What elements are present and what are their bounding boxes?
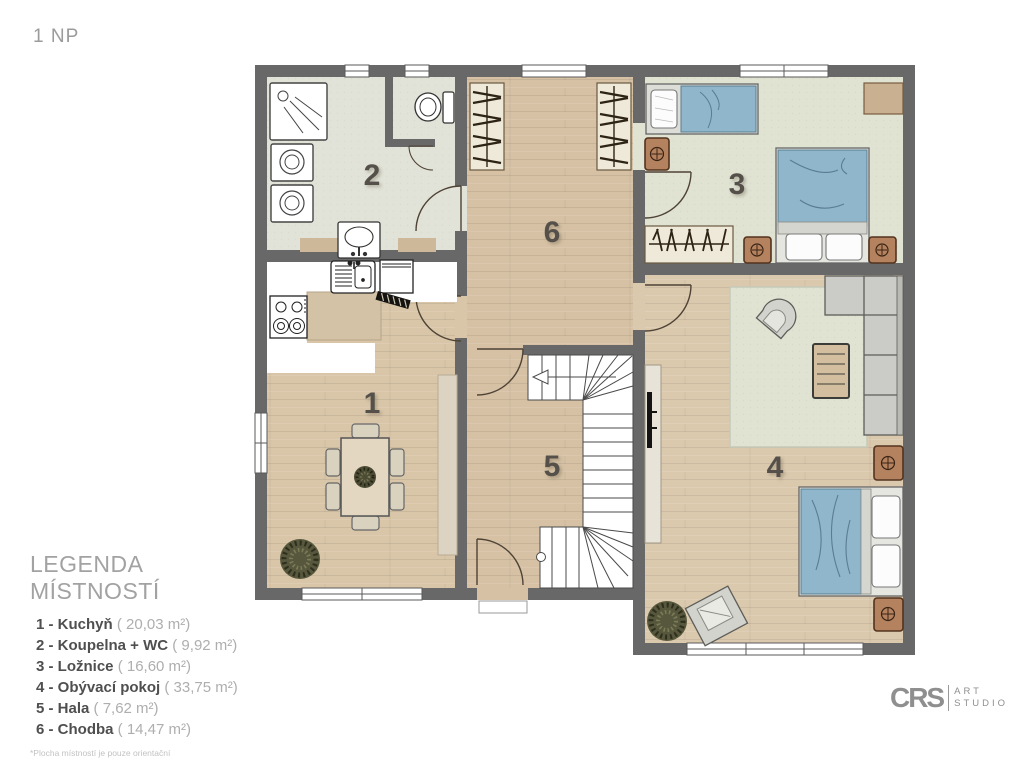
legend-list: 1 - Kuchyň ( 20,03 m²) 2 - Koupelna + WC… [30, 614, 260, 740]
logo-subtitle: ART STUDIO [954, 686, 1008, 710]
double-bed-bedroom [776, 148, 869, 263]
table-centerpiece [354, 466, 376, 488]
cooktop [270, 296, 307, 338]
chair-bottom [352, 516, 379, 530]
tv-bench [645, 365, 661, 543]
legend-item: 2 - Koupelna + WC ( 9,92 m²) [36, 635, 260, 656]
double-bed-living [799, 487, 903, 596]
coffee-table [813, 344, 849, 398]
tv-icon [647, 392, 652, 448]
counter-peninsula [307, 292, 381, 340]
chair-right-2 [390, 483, 404, 510]
nightstand-living-a [874, 446, 903, 480]
chair-right-1 [390, 449, 404, 476]
room-number-6: 6 [544, 216, 561, 250]
window-top-wc [405, 65, 429, 77]
nightstand-bedroom-a [645, 138, 669, 170]
studio-logo: CRS ART STUDIO [890, 682, 1008, 714]
window-top-bedroom [740, 65, 828, 77]
legend-footnote: *Plocha místností je pouze orientační [30, 748, 260, 758]
stairs-newel [537, 553, 546, 562]
entrance-step [479, 601, 527, 613]
nightstand-bedroom-b [744, 237, 771, 263]
room-number-1: 1 [364, 387, 381, 421]
legend-title: LEGENDA MÍSTNOSTÍ [30, 551, 260, 605]
legend: LEGENDA MÍSTNOSTÍ 1 - Kuchyň ( 20,03 m²)… [30, 551, 260, 758]
washing-machine [271, 144, 313, 181]
window-left-kitchen [255, 413, 267, 473]
single-bed [646, 84, 758, 134]
chair-left-2 [326, 483, 340, 510]
legend-item: 4 - Obývací pokoj ( 33,75 m²) [36, 677, 260, 698]
logo-brand: CRS [890, 682, 943, 714]
legend-item: 3 - Ložnice ( 16,60 m²) [36, 656, 260, 677]
window-top-hallway [522, 65, 586, 77]
room-number-3: 3 [729, 168, 746, 202]
dishwasher [380, 260, 413, 293]
floorplan-page: 1 NP [0, 0, 1024, 724]
dryer [271, 185, 313, 222]
shower [270, 83, 327, 140]
chair-left-1 [326, 449, 340, 476]
kitchen-sink [331, 261, 375, 293]
plant-living [647, 601, 687, 641]
wardrobe-right [597, 83, 631, 170]
window-bottom-kitchen [302, 588, 422, 600]
room-number-4: 4 [767, 451, 784, 485]
nightstand-bedroom-c [869, 237, 896, 263]
nightstand-living-b [874, 598, 903, 631]
room-number-2: 2 [364, 159, 381, 193]
wardrobe-bedroom [645, 226, 733, 263]
legend-item: 6 - Chodba ( 14,47 m²) [36, 719, 260, 740]
bedroom-cabinet [864, 83, 903, 114]
plant-kitchen [280, 539, 320, 579]
room-number-5: 5 [544, 450, 561, 484]
chair-top [352, 424, 379, 438]
logo-divider [948, 685, 949, 711]
wardrobe-left [470, 83, 504, 170]
window-top-bath [345, 65, 369, 77]
counter-bottom-block [267, 343, 375, 373]
legend-item: 1 - Kuchyň ( 20,03 m²) [36, 614, 260, 635]
bath-cabinet-right [398, 238, 436, 252]
legend-item: 5 - Hala ( 7,62 m²) [36, 698, 260, 719]
window-bottom-living [687, 643, 863, 655]
bath-sink [338, 222, 380, 258]
bath-cabinet-left [300, 238, 338, 252]
kitchen-tall-cabinet [438, 375, 457, 555]
toilet [415, 92, 454, 123]
